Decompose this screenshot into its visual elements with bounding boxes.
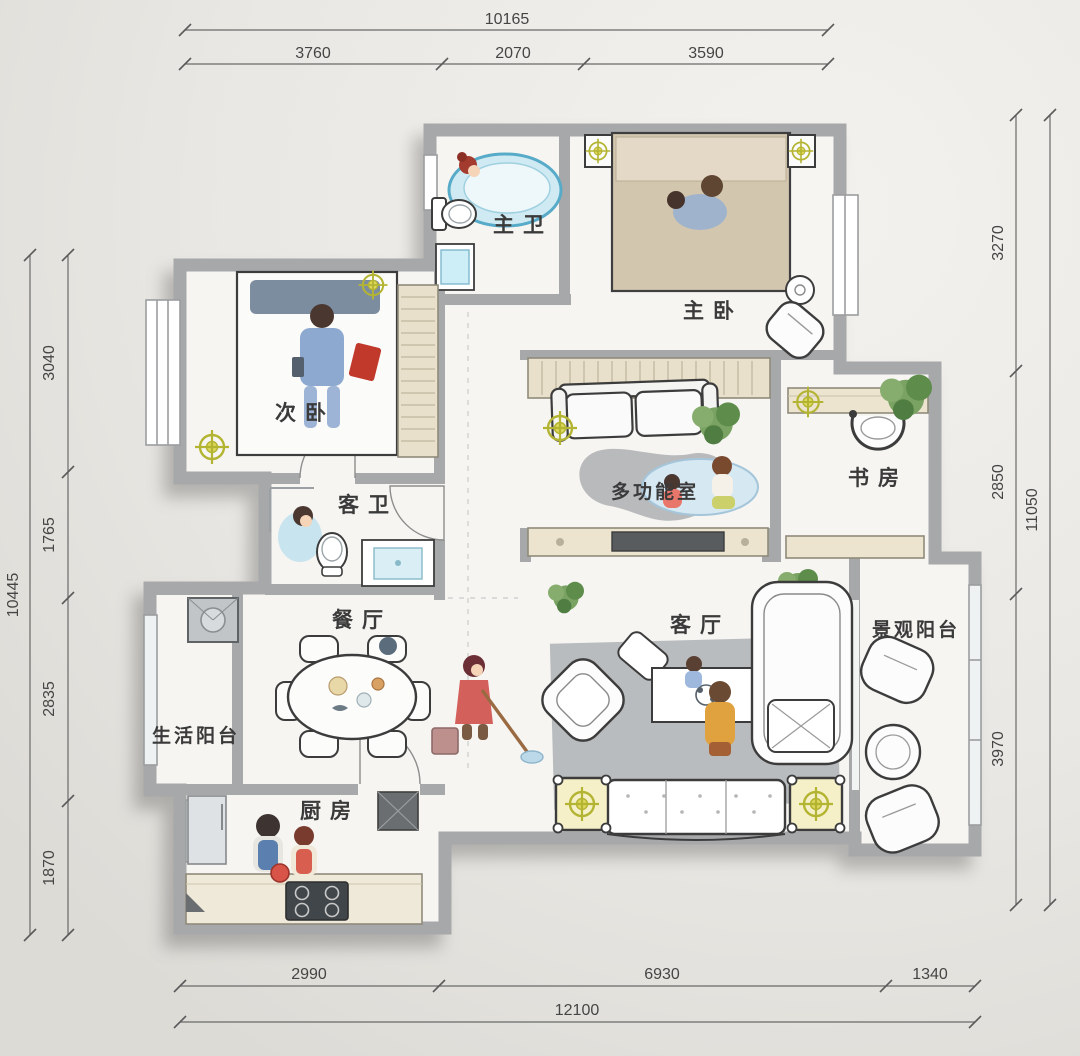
dim-right-seg3: 3970	[990, 731, 1007, 767]
balcony-table	[866, 725, 920, 779]
floor-plan-page: 10165 3760 2070 3590 10445 3040 1765 283…	[0, 0, 1080, 1056]
corner-side-table	[786, 276, 814, 304]
guest-toilet	[317, 533, 347, 576]
wall-kitchen-top-b	[420, 784, 445, 795]
kitchen-counter	[186, 874, 422, 924]
dim-bottom-seg2: 6930	[644, 966, 680, 983]
dim-right-seg2: 2850	[990, 464, 1007, 500]
dim-bottom-total: 12100	[555, 1002, 600, 1019]
bucket	[432, 728, 458, 754]
room-label-kitchen: 厨房	[300, 799, 360, 823]
nightstand-left	[585, 135, 612, 167]
door-gap-secondbed	[300, 470, 355, 486]
dim-bottom-seg3: 1340	[912, 966, 948, 983]
master-bath-basin	[436, 244, 474, 290]
flue-column	[378, 792, 418, 830]
tv-console	[612, 532, 724, 551]
room-label-dining: 餐厅	[332, 608, 392, 632]
nightstand-right	[788, 135, 815, 167]
window-secondbed-bay	[146, 300, 180, 445]
room-label-living: 客厅	[670, 613, 730, 637]
room-label-guest-bath: 客卫	[338, 493, 398, 517]
dining-table	[288, 655, 416, 739]
guest-basin	[362, 540, 434, 586]
wall-utilitybalcony-top	[150, 584, 242, 595]
dim-top-total: 10165	[485, 11, 530, 28]
dim-top-seg1: 3760	[295, 45, 331, 62]
dining-set	[276, 636, 430, 757]
dim-left-seg1: 3040	[41, 345, 58, 381]
cooking-pot	[271, 864, 289, 882]
wall-kitchen-top-a	[180, 784, 360, 795]
dim-left-seg3: 2835	[41, 681, 58, 717]
room-label-master-bedroom: 主卧	[683, 300, 743, 323]
room-label-view-balcony: 景观阳台	[872, 618, 960, 641]
wardrobe	[398, 285, 438, 457]
child-figure	[310, 304, 334, 328]
dim-right-seg1: 3270	[990, 225, 1007, 261]
washer	[188, 598, 238, 642]
tv-cabinet	[528, 528, 768, 556]
fridge	[188, 796, 226, 864]
room-label-multi-function: 多功能室	[611, 480, 699, 503]
dining-person	[379, 637, 397, 655]
room-label-master-bath: 主卫	[493, 214, 553, 237]
wall-masterbath-masterbed	[559, 130, 570, 302]
wall-secondbed-bottom-a	[180, 473, 300, 484]
room-label-second-bedroom: 次卧	[275, 401, 335, 425]
door-gap-guestbath	[432, 486, 447, 538]
main-sofa	[607, 780, 785, 840]
master-bath-toilet	[432, 198, 476, 230]
room-label-utility-balcony: 生活阳台	[152, 724, 240, 747]
wall-masterbath-bottom	[430, 294, 571, 305]
dim-left-seg2: 1765	[41, 517, 58, 553]
dim-left-total: 10445	[5, 573, 22, 618]
side-table-right	[788, 776, 845, 833]
floor-plan: 10165 3760 2070 3590 10445 3040 1765 283…	[0, 0, 1080, 1056]
wall-secondbed-bottom-b	[355, 473, 445, 484]
stove	[286, 882, 348, 920]
dim-bottom-seg1: 2990	[291, 966, 327, 983]
dim-left-seg4: 1870	[41, 850, 58, 886]
dim-right-total: 11050	[1024, 488, 1041, 531]
chaise-sofa	[752, 582, 852, 764]
master-bed	[612, 133, 790, 291]
side-table-left	[554, 776, 611, 833]
window-viewbalcony	[969, 585, 981, 825]
dim-top-seg2: 2070	[495, 45, 531, 62]
study-cabinet	[786, 536, 924, 558]
room-label-study: 书房	[848, 466, 908, 490]
dim-top-seg3: 3590	[688, 45, 724, 62]
second-bed	[237, 272, 397, 455]
phone	[292, 357, 304, 377]
